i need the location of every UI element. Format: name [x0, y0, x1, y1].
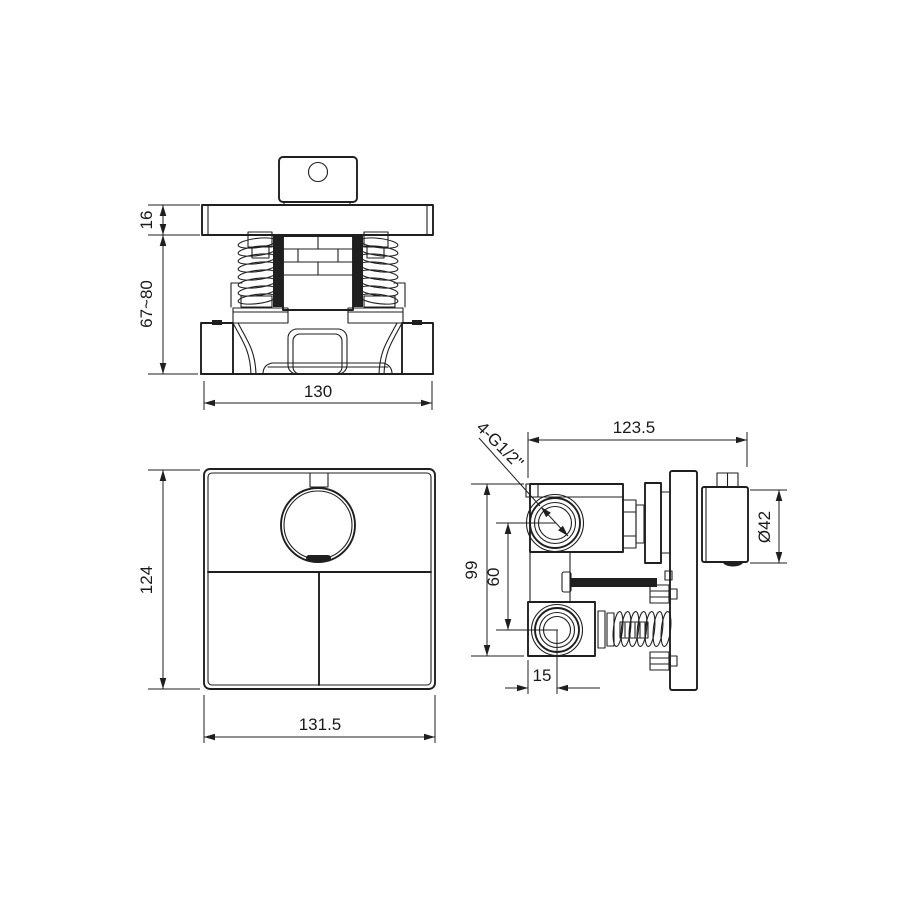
thread-callout: 4-G1/2"	[473, 418, 527, 472]
panel-knob-inner	[284, 491, 352, 559]
fixing-bolt-bottom	[650, 652, 677, 670]
dim-port-spacing: 60	[484, 568, 503, 587]
dim-body-height: 99	[462, 561, 481, 580]
dim-body-width: 130	[304, 382, 332, 401]
guide-rod-right	[353, 236, 363, 307]
dim-plate-thickness: 16	[137, 211, 156, 230]
guide-rod-left	[273, 236, 283, 307]
dim-height-range: 67~80	[137, 280, 156, 328]
knob-notch	[310, 473, 328, 487]
panel-view: 124 131.5	[137, 469, 435, 743]
knob-indicator	[306, 555, 331, 561]
cartridge-stack	[623, 483, 670, 563]
technical-drawing: 16 67~80 130 124 131.5	[0, 0, 900, 900]
spring-left	[231, 232, 283, 307]
front-view: 16 67~80 130	[137, 157, 433, 410]
dim-port-offset: 15	[533, 666, 552, 685]
valve-body-front	[201, 308, 433, 374]
mounting-plate	[665, 471, 697, 690]
dim-panel-width: 131.5	[299, 715, 342, 734]
panel-knob-outer	[281, 488, 355, 562]
front-knob	[279, 157, 357, 205]
knob-screw-hole	[309, 163, 328, 182]
threaded-rod	[562, 572, 657, 592]
side-knob	[702, 473, 748, 567]
front-plate	[202, 205, 433, 235]
side-spring	[598, 611, 672, 648]
spring-right	[353, 232, 405, 307]
side-dimensions: 123.5 99 60 15 Ø42 4-G1/2"	[462, 418, 787, 694]
panel-dimensions: 124 131.5	[137, 470, 435, 743]
fixing-bolt-top	[650, 585, 677, 603]
dim-panel-height: 124	[137, 566, 156, 594]
dim-knob-diameter: Ø42	[755, 511, 774, 543]
cartridge-block	[283, 236, 353, 310]
side-view: 123.5 99 60 15 Ø42 4-G1/2"	[462, 418, 787, 694]
drawing-canvas: 16 67~80 130 124 131.5	[0, 0, 900, 900]
dim-depth: 123.5	[613, 418, 656, 437]
